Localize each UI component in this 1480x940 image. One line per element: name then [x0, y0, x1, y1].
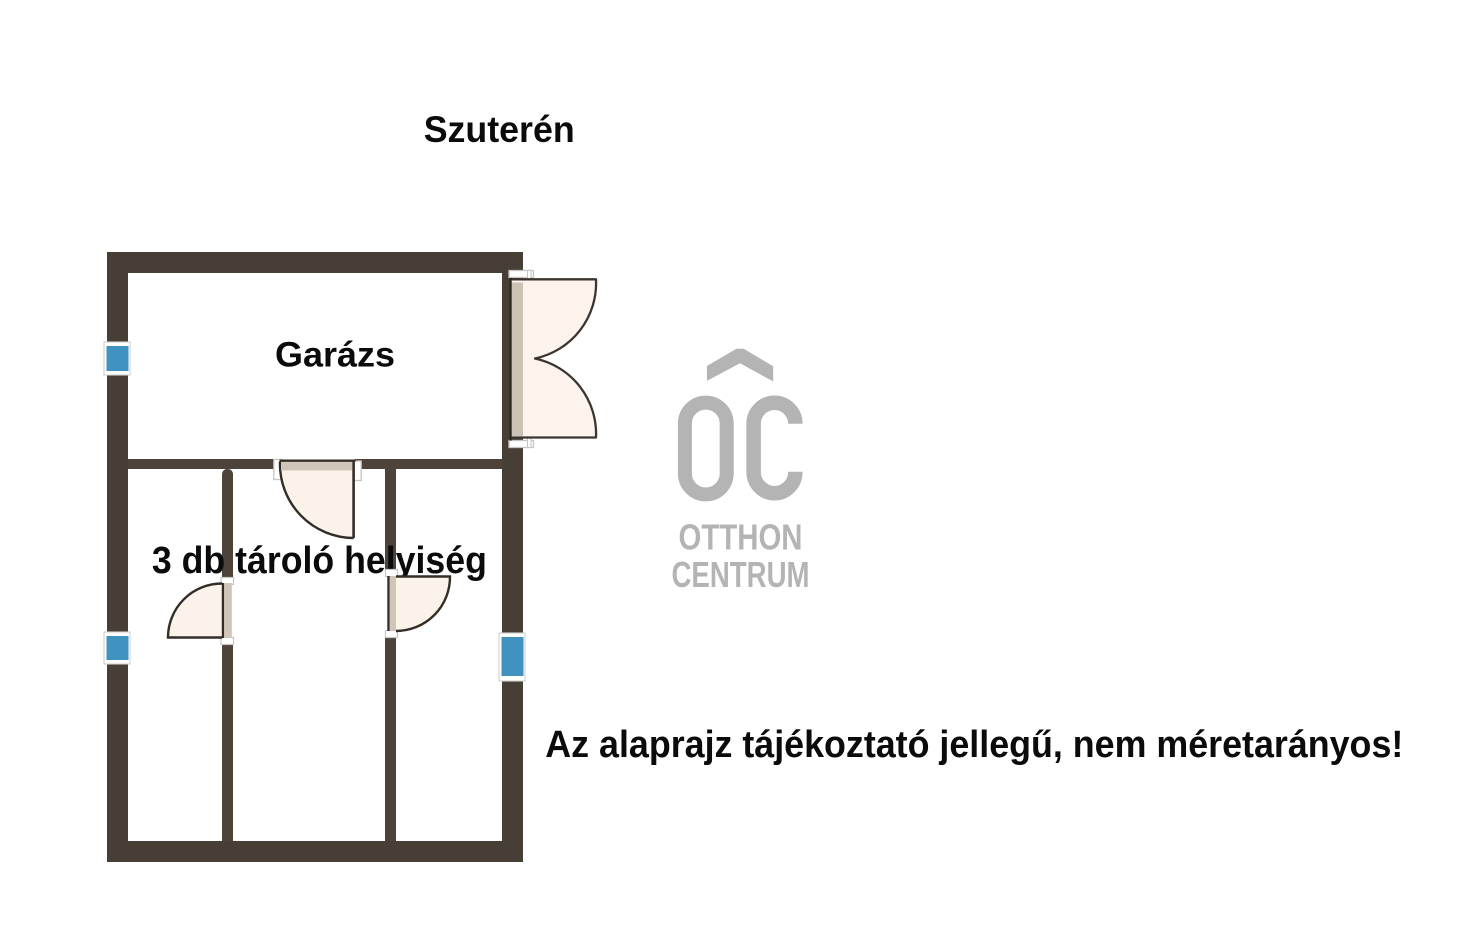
svg-text:OTTHON: OTTHON: [679, 517, 803, 558]
svg-text:Az alaprajz tájékoztató jelleg: Az alaprajz tájékoztató jellegű, nem mér…: [545, 724, 1403, 766]
svg-text:Szuterén: Szuterén: [424, 109, 575, 150]
svg-text:CENTRUM: CENTRUM: [672, 554, 810, 595]
svg-text:Garázs: Garázs: [275, 336, 395, 375]
